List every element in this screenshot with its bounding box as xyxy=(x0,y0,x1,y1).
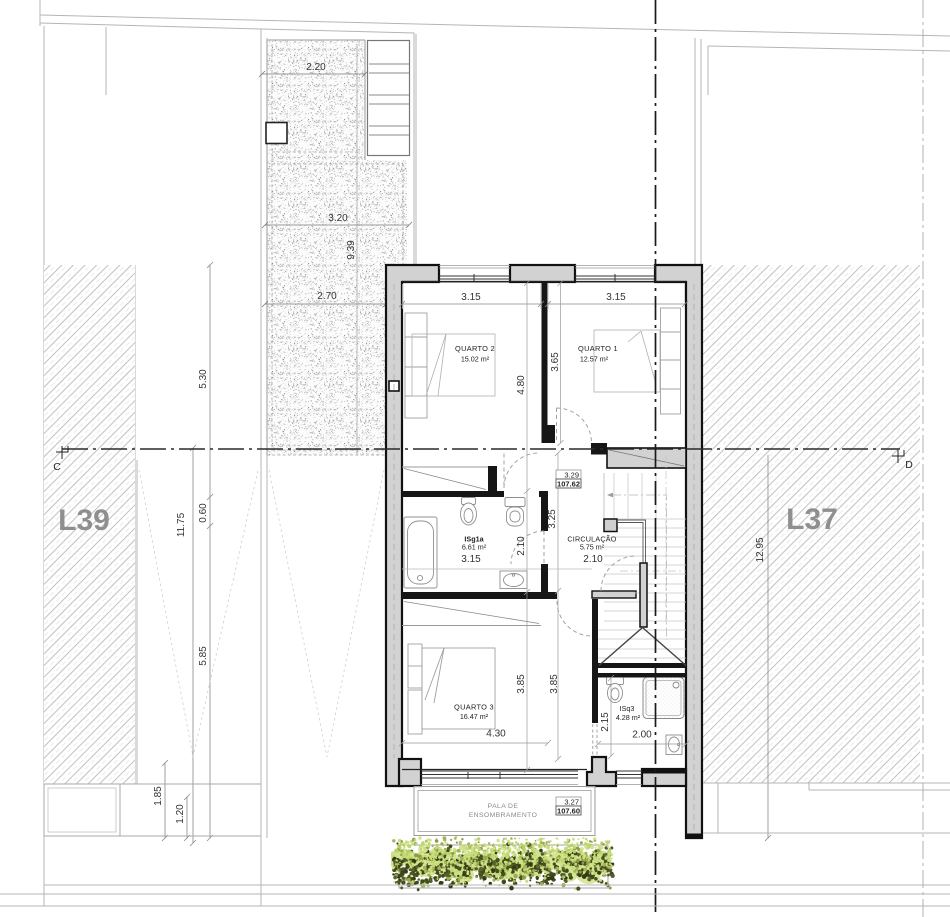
svg-text:5.30: 5.30 xyxy=(198,369,209,389)
svg-text:2.15: 2.15 xyxy=(600,712,611,732)
svg-text:QUARTO 3: QUARTO 3 xyxy=(454,703,494,712)
svg-text:2.10: 2.10 xyxy=(516,536,527,556)
svg-text:C: C xyxy=(53,461,61,473)
svg-text:5.85: 5.85 xyxy=(198,646,209,666)
svg-text:D: D xyxy=(905,459,913,471)
svg-text:12.57 m²: 12.57 m² xyxy=(580,355,609,364)
svg-text:9.39: 9.39 xyxy=(346,240,357,260)
svg-text:QUARTO 2: QUARTO 2 xyxy=(455,344,495,353)
svg-text:2.20: 2.20 xyxy=(306,62,326,73)
svg-text:3.85: 3.85 xyxy=(549,674,560,694)
svg-text:16.47 m²: 16.47 m² xyxy=(460,712,489,721)
svg-text:6.61 m²: 6.61 m² xyxy=(462,543,487,552)
svg-text:ENSOMBRAMENTO: ENSOMBRAMENTO xyxy=(469,812,538,819)
svg-text:3.85: 3.85 xyxy=(516,674,527,694)
svg-text:PALA DE: PALA DE xyxy=(488,803,519,810)
svg-text:107.60: 107.60 xyxy=(557,807,580,816)
svg-text:5.75 m²: 5.75 m² xyxy=(580,543,605,552)
svg-text:2.10: 2.10 xyxy=(583,554,603,565)
svg-text:12.95: 12.95 xyxy=(755,537,766,562)
svg-text:15.02 m²: 15.02 m² xyxy=(461,355,490,364)
svg-text:2.70: 2.70 xyxy=(317,291,337,302)
svg-text:2.00: 2.00 xyxy=(632,730,652,741)
svg-text:3.15: 3.15 xyxy=(606,292,626,303)
svg-text:4.80: 4.80 xyxy=(516,375,527,395)
svg-text:3.65: 3.65 xyxy=(550,352,561,372)
svg-text:4.30: 4.30 xyxy=(486,729,506,740)
svg-text:4.28 m²: 4.28 m² xyxy=(616,713,641,722)
svg-text:ISq3: ISq3 xyxy=(620,704,635,713)
svg-text:3.15: 3.15 xyxy=(461,292,481,303)
svg-text:1.20: 1.20 xyxy=(175,804,186,824)
svg-text:1.85: 1.85 xyxy=(153,786,164,806)
svg-text:3.25: 3.25 xyxy=(547,509,558,529)
svg-text:3.29: 3.29 xyxy=(564,471,579,480)
svg-text:L37: L37 xyxy=(786,503,838,536)
svg-text:3.15: 3.15 xyxy=(461,554,481,565)
svg-text:L39: L39 xyxy=(58,504,110,537)
svg-text:0.60: 0.60 xyxy=(198,503,209,523)
svg-text:11.75: 11.75 xyxy=(176,512,187,537)
svg-text:3.20: 3.20 xyxy=(328,213,348,224)
svg-text:QUARTO 1: QUARTO 1 xyxy=(578,344,618,353)
svg-text:3.27: 3.27 xyxy=(564,798,579,807)
svg-text:107.62: 107.62 xyxy=(557,480,580,489)
